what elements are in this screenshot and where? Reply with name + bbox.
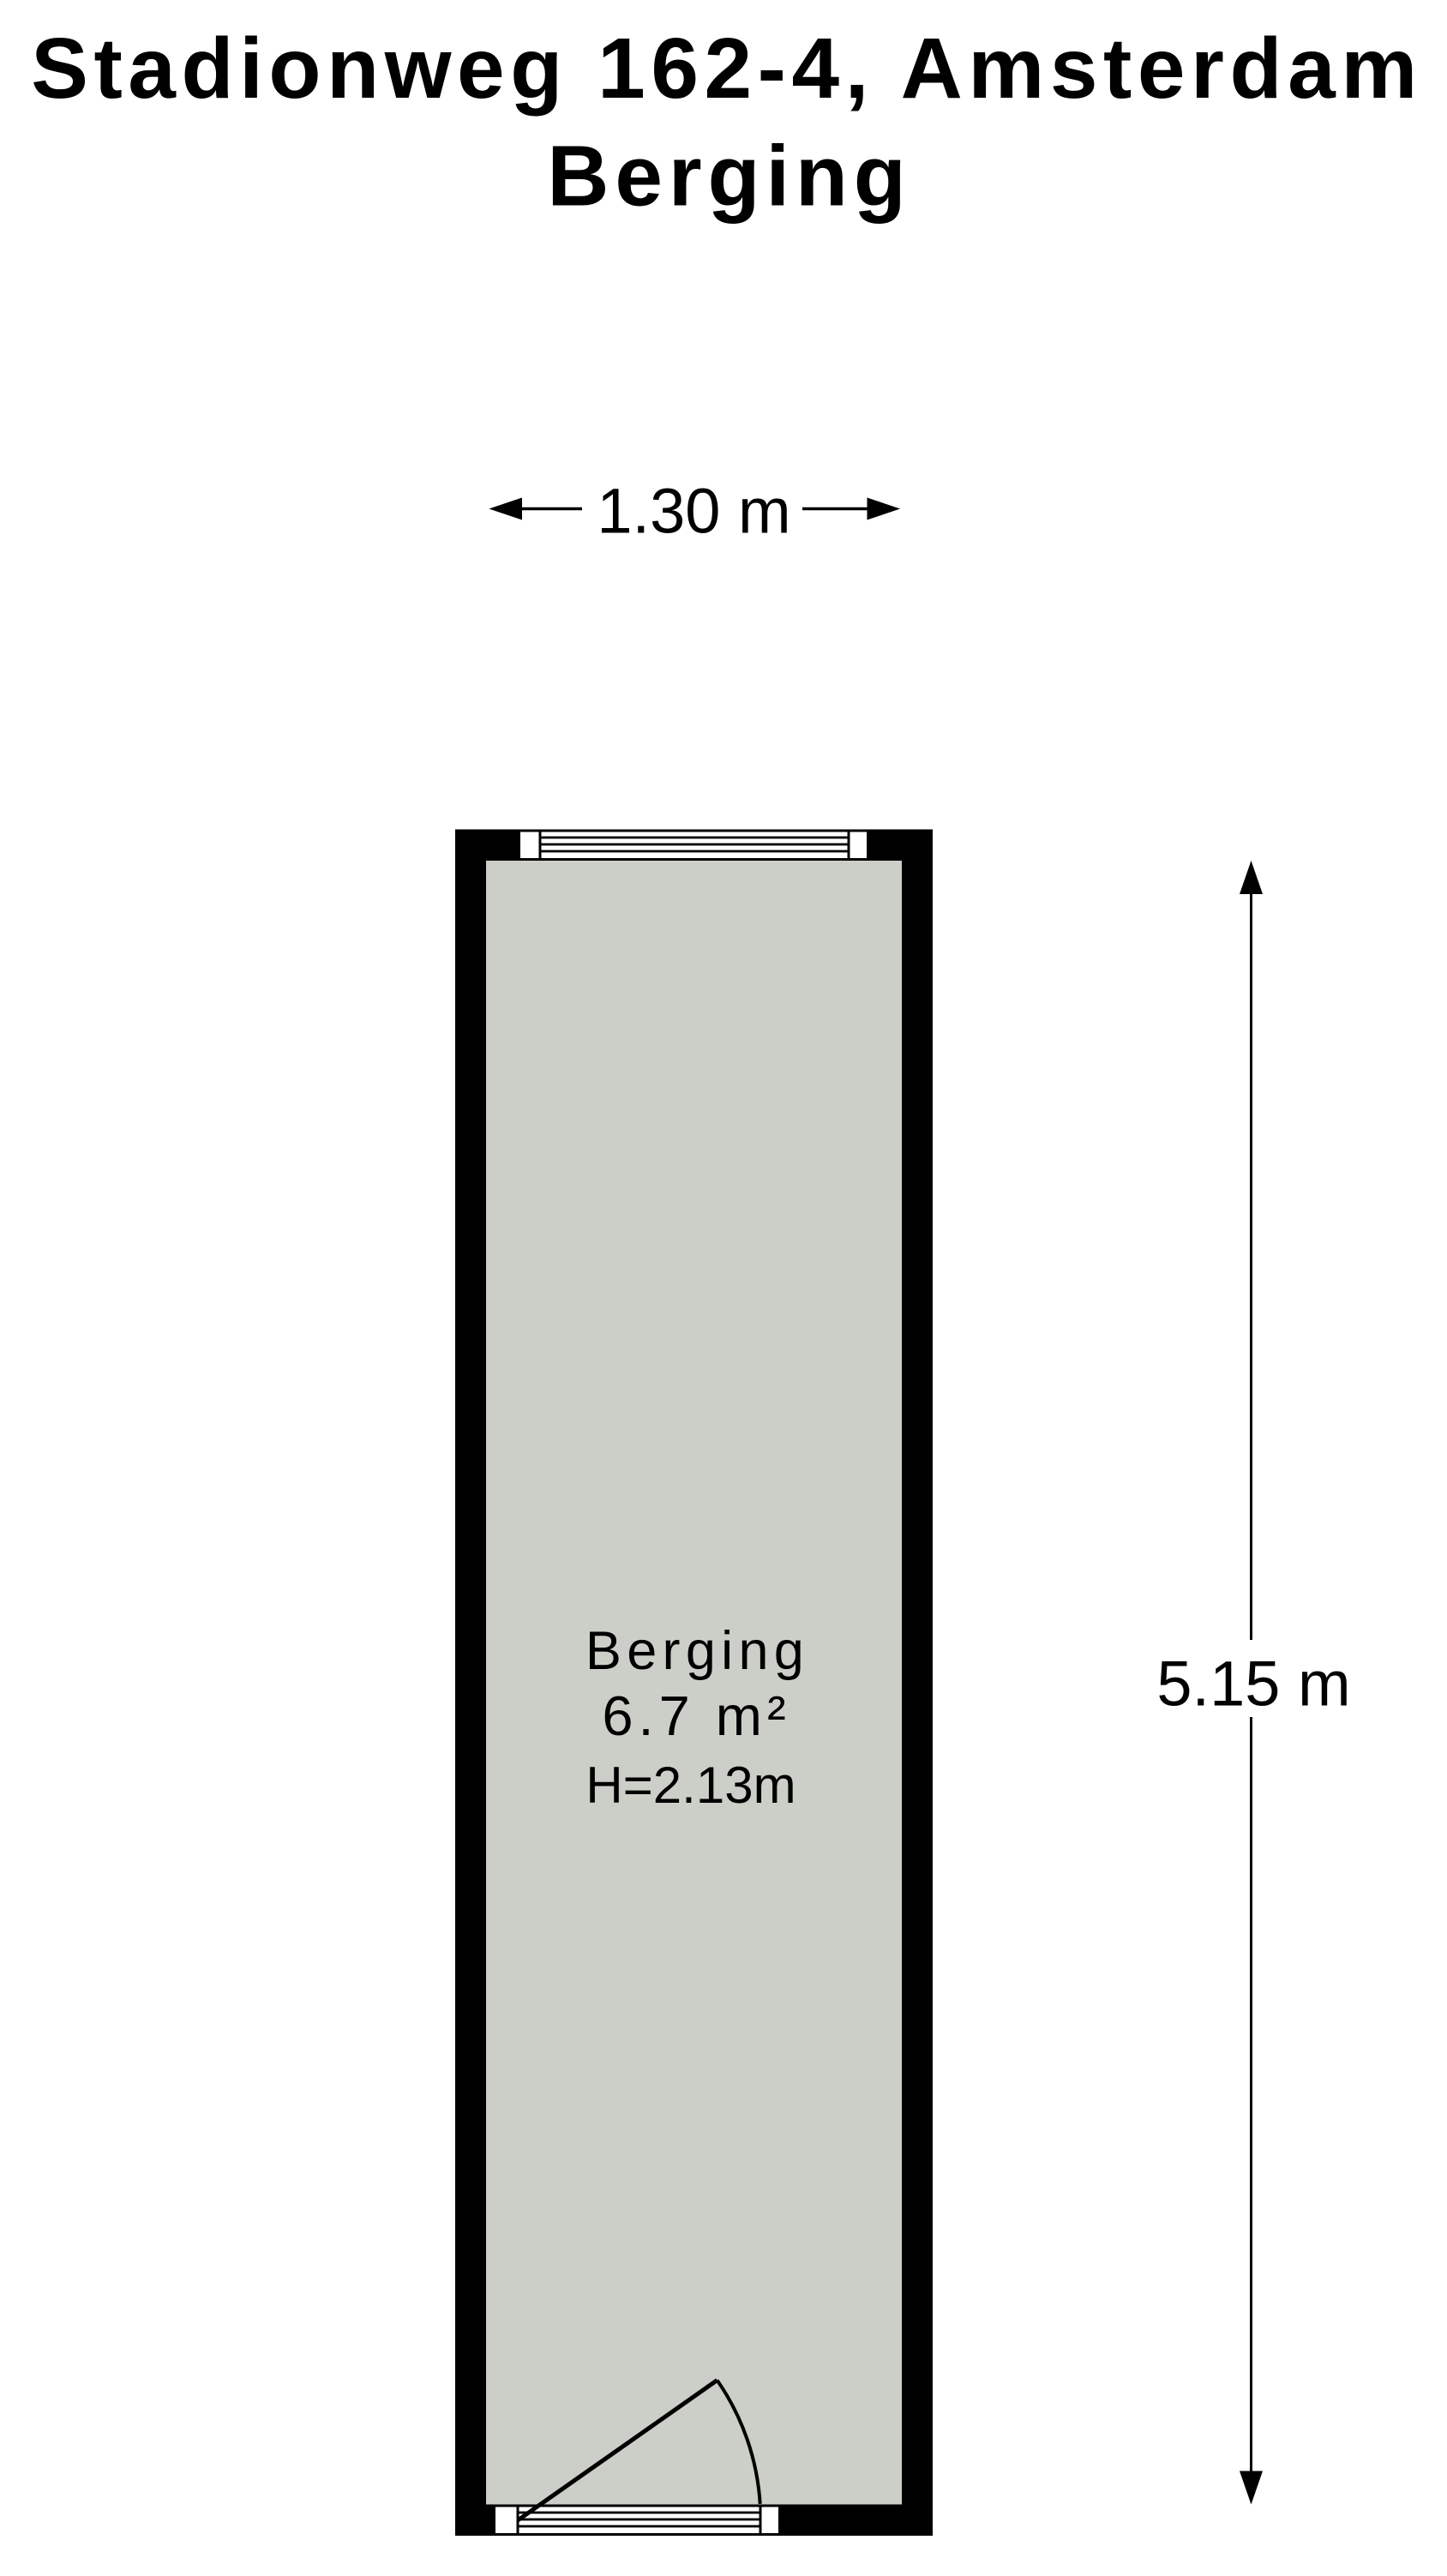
svg-text:H=2.13m: H=2.13m [585, 1756, 796, 1814]
svg-text:Berging: Berging [547, 129, 911, 225]
svg-text:Berging: Berging [585, 1621, 809, 1681]
svg-text:1.30 m: 1.30 m [597, 476, 790, 547]
svg-text:Stadionweg 162-4, Amsterdam: Stadionweg 162-4, Amsterdam [31, 21, 1423, 117]
svg-text:5.15 m: 5.15 m [1156, 1648, 1350, 1720]
svg-text:6.7 m²: 6.7 m² [602, 1684, 790, 1747]
